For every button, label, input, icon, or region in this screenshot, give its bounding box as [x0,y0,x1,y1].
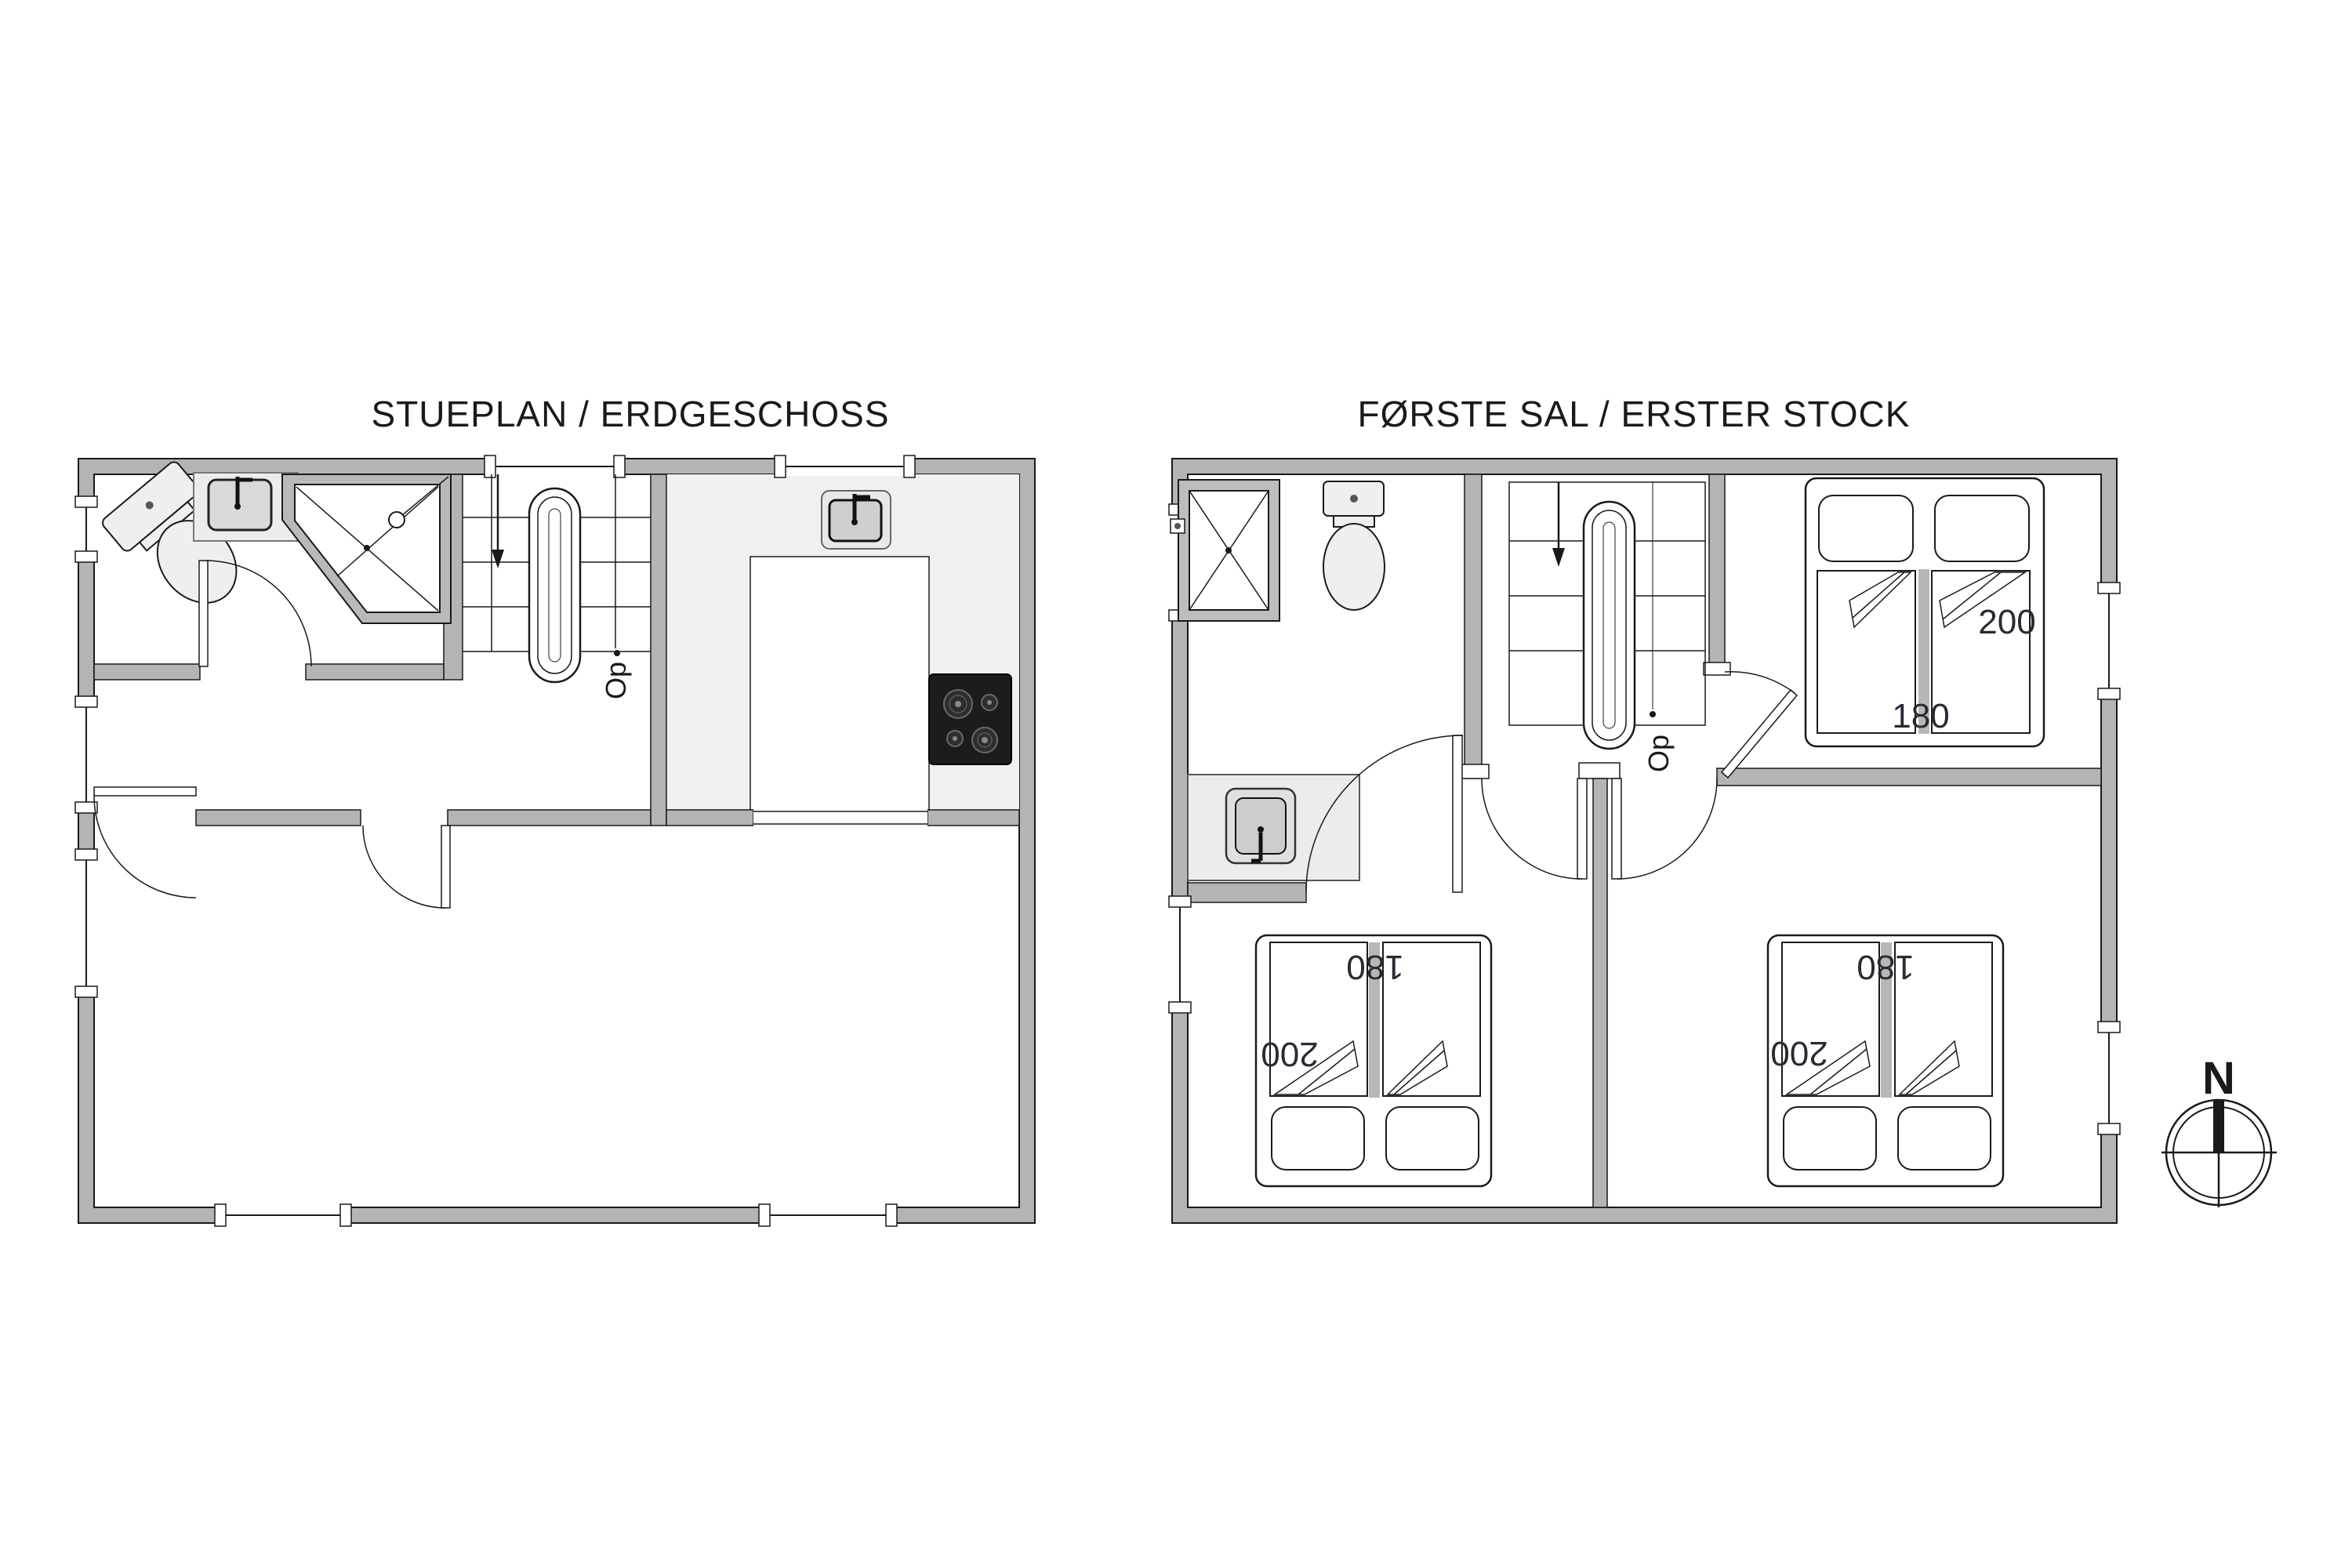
kitchen-sink-icon [822,491,891,549]
ground-floor-plan: STUEPLAN / ERDGESCHOSS [75,394,1035,1226]
shower-icon [1171,480,1279,621]
bedroom-top-south-wall [1717,768,2101,786]
kitchen [666,474,1019,810]
vanity-sink-icon [1188,775,1359,880]
pillow [1935,495,2029,561]
bed-length-label: 200 [1978,603,2035,641]
pillow [1272,1107,1364,1170]
compass-north-needle [2213,1099,2224,1152]
bedroom-top-west-wall [1709,474,1725,668]
bathroom2-south-wall [1188,883,1306,902]
bathroom-south-wall-a [94,664,200,680]
pillow [1898,1107,1991,1170]
hall-south-wall-a [196,810,361,826]
window [2098,583,2120,699]
bed-length-label: 200 [1770,1034,1828,1073]
compass-north-label: N [2202,1053,2235,1104]
kitchen-west-wall [651,474,666,826]
window [215,1204,351,1226]
bathroom-south-wall-b [306,664,444,680]
kitchen-living-opening [753,808,927,827]
pillow [1386,1107,1479,1170]
central-wall-cap [1579,763,1620,779]
window [485,456,625,477]
stairs-up-label-first: Op [1642,735,1675,772]
bed-width-label: 180 [1346,948,1403,986]
stove-icon [929,674,1011,764]
kitchen-island [750,557,929,810]
window [759,1204,897,1226]
window [2098,1022,2120,1134]
first-floor-plan: FØRSTE SAL / ERSTER STOCK [1169,394,2120,1223]
bed-double-bottom-left: 180 200 [1256,935,1491,1186]
kitchen-south-wall-a [666,810,753,826]
stairs-up-label-ground: Op [600,662,632,699]
ground-floor-title: STUEPLAN / ERDGESCHOSS [371,394,889,434]
window [75,849,97,997]
first-floor-title: FØRSTE SAL / ERSTER STOCK [1358,394,1911,434]
central-dividing-wall [1593,779,1607,1207]
window [775,456,915,477]
floorplan-canvas: STUEPLAN / ERDGESCHOSS [0,0,2352,1568]
window [1169,896,1191,1013]
compass-rose: N [2161,1053,2277,1207]
pillow [1784,1107,1876,1170]
hall-south-wall-b [448,810,651,826]
pillow [1819,495,1913,561]
kitchen-south-wall-b [927,810,1019,826]
bed-double-bottom-right: 180 200 [1768,935,2003,1186]
bathroom2-east-wall [1465,474,1482,779]
floorplan-drawing: STUEPLAN / ERDGESCHOSS [0,0,2352,1568]
bed-width-label: 180 [1892,697,1949,735]
window [75,496,97,562]
bed-width-label: 180 [1857,948,1914,986]
bed-length-label: 200 [1261,1035,1318,1073]
bed-double-top: 200 180 [1806,478,2044,746]
toilet-icon [1323,481,1385,610]
